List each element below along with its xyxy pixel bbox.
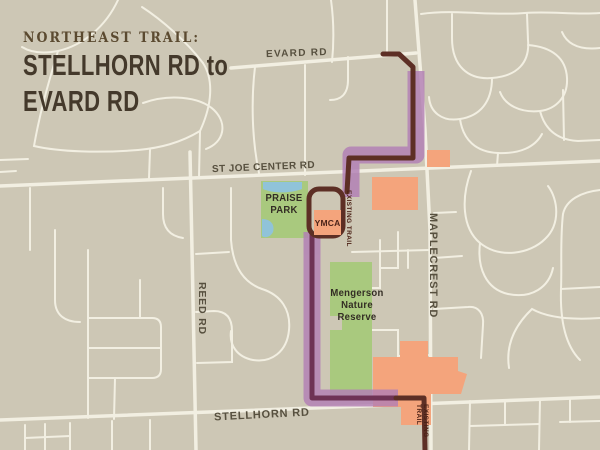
existing-trail-label-lower: EXISTING TRAIL [415, 404, 429, 450]
mengerson-area [330, 262, 372, 395]
orange-parcel-stjoe-sw [372, 177, 418, 210]
mengerson-label: Mengerson Nature Reserve [327, 288, 388, 324]
ymca-label: YMCA [315, 218, 341, 228]
map-title: NORTHEAST TRAIL: STELLHORN RD to EVARD R… [23, 30, 293, 118]
trail-map: YMCA EVARD RD ST JOE CENTER RD STELLHORN… [0, 0, 600, 450]
praise-park-label: PRAISE PARK [259, 193, 308, 217]
existing-trail-label-upper: EXISTING TRAIL [345, 190, 352, 247]
map-title-line1: STELLHORN RD to [23, 50, 228, 82]
map-title-kicker: NORTHEAST TRAIL: [23, 30, 266, 46]
maplecrest-rd-label: MAPLECREST RD [427, 213, 439, 318]
ymca-parcel: YMCA [314, 210, 341, 235]
orange-parcel-stjoe-ne [427, 150, 450, 167]
map-title-line2: EVARD RD [23, 86, 228, 118]
reed-rd-label: REED RD [196, 282, 208, 335]
